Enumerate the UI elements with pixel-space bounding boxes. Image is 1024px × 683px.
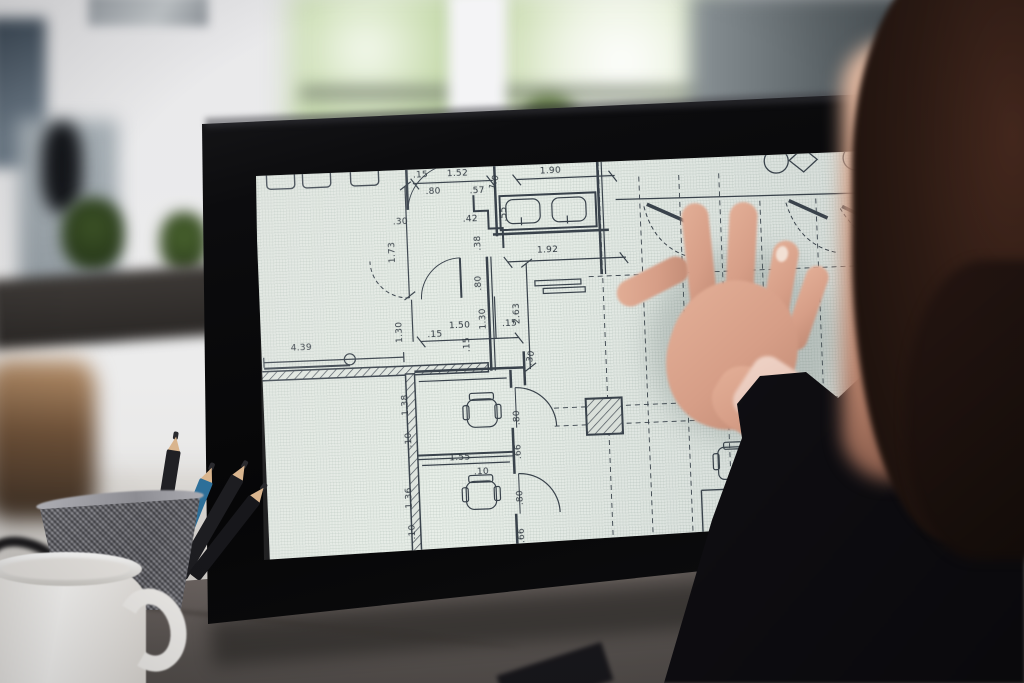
dimension-label: 1.38 xyxy=(400,394,411,416)
toilet xyxy=(462,474,501,509)
dimension-label: .10 xyxy=(408,524,419,540)
dimension-label: .66 xyxy=(517,528,528,544)
dimension-label: .15 xyxy=(462,337,473,353)
dimension-label: .10 xyxy=(404,432,415,448)
mug-interior xyxy=(2,558,130,580)
dimension-label: 1.30 xyxy=(478,308,489,330)
picture-frame xyxy=(88,0,208,26)
sink xyxy=(552,197,587,222)
photo-scene: .151.52.80.571.901.0.30.42.55.381.921.73… xyxy=(0,0,1024,683)
dimension-label: .38 xyxy=(473,235,484,251)
window-mullion xyxy=(300,86,720,100)
dimension-label: .42 xyxy=(463,214,479,225)
dimension-label: .80 xyxy=(425,187,441,198)
dimension-label: 1.52 xyxy=(447,168,469,179)
dimension-label: .30 xyxy=(393,217,409,228)
dimension-label: .15 xyxy=(413,170,429,181)
dimension-label: .15 xyxy=(502,319,518,330)
door-swing xyxy=(370,260,409,299)
dimension-label: .10 xyxy=(474,467,490,478)
dimension-label: 1.55 xyxy=(449,453,471,464)
dimension-label: 1.73 xyxy=(387,242,398,264)
hatched-wall xyxy=(256,363,488,381)
potted-plant xyxy=(160,212,208,272)
dimension-label: 4.39 xyxy=(291,343,313,354)
sink xyxy=(506,199,541,224)
toilet xyxy=(462,392,501,427)
dimension-label: .80 xyxy=(515,490,526,506)
background-chair-silhouette xyxy=(42,122,82,212)
structural-column xyxy=(586,397,623,434)
dimension-label: .55 xyxy=(499,206,510,222)
dimension-label: 1.36 xyxy=(404,487,415,509)
dimension-label: 1.30 xyxy=(394,321,405,343)
dimension-label: .57 xyxy=(469,186,485,197)
dimension-label: 1.50 xyxy=(449,320,471,331)
dimension-label: .15 xyxy=(427,330,443,341)
dimension-label: .80 xyxy=(474,275,485,291)
potted-plant xyxy=(62,198,124,270)
dimension-label: .66 xyxy=(513,444,524,460)
dimension-label: .80 xyxy=(512,410,523,426)
door-swing xyxy=(420,258,462,300)
dimension-label: 1.90 xyxy=(540,166,562,177)
dimension-label: 1.92 xyxy=(537,245,559,256)
